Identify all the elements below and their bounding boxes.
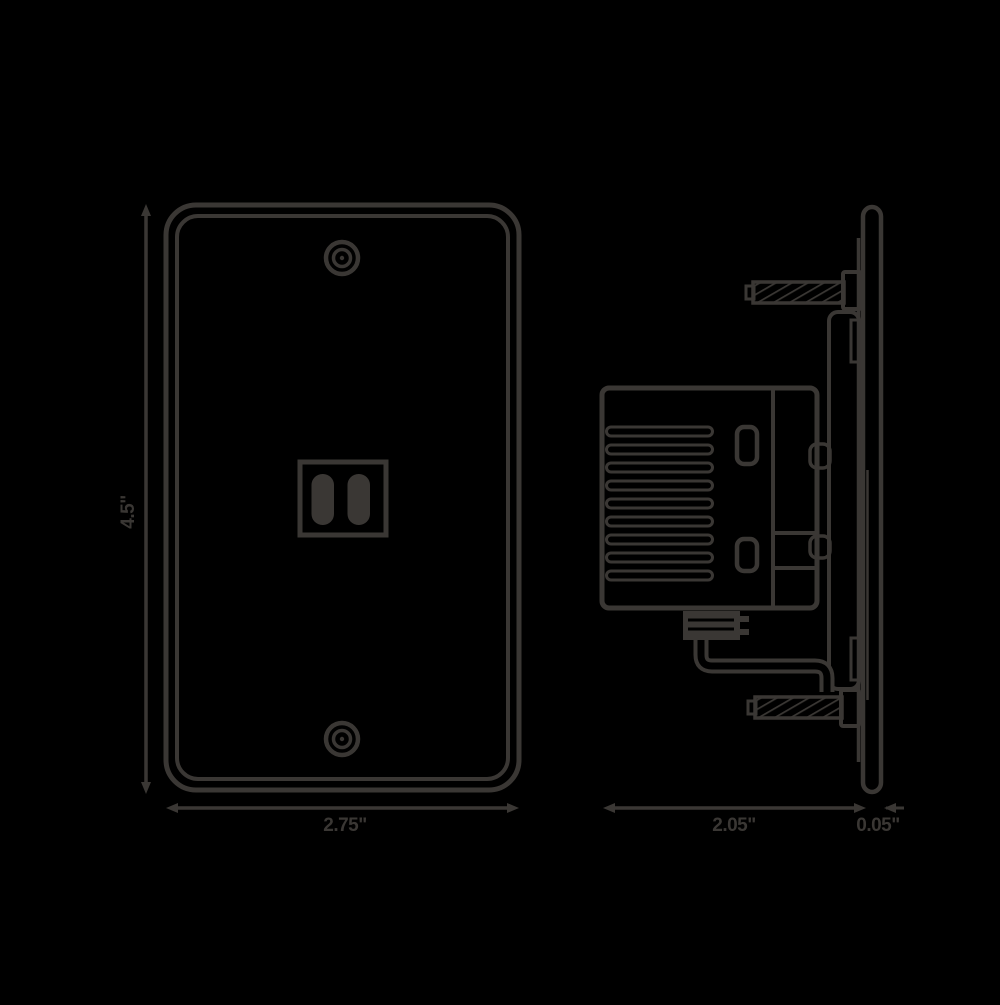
fin bbox=[607, 445, 713, 454]
jack-slot-left bbox=[312, 474, 335, 525]
diagram-canvas: 4.5" 2.75" 2.05" 0.05" bbox=[0, 0, 1000, 1000]
arrowhead-left bbox=[166, 803, 178, 813]
connector-block bbox=[683, 611, 749, 640]
front-screw-top bbox=[326, 242, 358, 274]
front-plate-outer-outline bbox=[166, 205, 519, 790]
arrowhead-right bbox=[507, 803, 519, 813]
screw-thread-shaft bbox=[755, 697, 842, 718]
fin bbox=[607, 481, 713, 490]
connector-pin-lower bbox=[740, 629, 749, 635]
dimension-front-height-label: 4.5" bbox=[118, 495, 139, 528]
arrowhead-right bbox=[854, 803, 866, 813]
screw-thread-shaft bbox=[753, 282, 844, 303]
mounting-screw-bottom bbox=[748, 690, 859, 726]
screw-tip bbox=[746, 286, 754, 299]
fin bbox=[607, 553, 713, 562]
wall-plate-dimension-drawing: 4.5" 2.75" 2.05" 0.05" bbox=[0, 0, 1000, 1000]
screw-tip bbox=[748, 701, 756, 714]
wire-inner bbox=[701, 640, 827, 692]
screw-center-dot bbox=[340, 737, 344, 741]
connector-pin-upper bbox=[740, 616, 749, 622]
vent-slot-bottom bbox=[737, 539, 757, 571]
screw-center-dot bbox=[340, 256, 344, 260]
fin bbox=[607, 427, 713, 436]
arrowhead-down bbox=[141, 782, 151, 794]
dimension-front-width-label: 2.75" bbox=[323, 815, 367, 836]
front-view bbox=[166, 205, 519, 790]
front-screw-bottom bbox=[326, 723, 358, 755]
side-plate-profile bbox=[863, 207, 881, 792]
jack-slot-right bbox=[348, 474, 371, 525]
side-view bbox=[602, 207, 881, 792]
vent-slot-top bbox=[737, 427, 757, 464]
dimension-plate-thickness-label: 0.05" bbox=[856, 815, 900, 836]
dimension-front-width: 2.75" bbox=[166, 803, 519, 836]
fin bbox=[607, 517, 713, 526]
dimension-front-height: 4.5" bbox=[118, 204, 151, 794]
fin bbox=[607, 571, 713, 580]
front-plate-inner-outline bbox=[177, 216, 508, 779]
jack-opening bbox=[300, 462, 386, 535]
arrowhead-up bbox=[141, 204, 151, 216]
device-body bbox=[602, 388, 830, 608]
wire-conduit bbox=[701, 640, 827, 692]
connector-body bbox=[683, 611, 740, 640]
dimension-side-depth-label: 2.05" bbox=[712, 815, 756, 836]
arrowhead-left bbox=[603, 803, 615, 813]
plate-profile-outline bbox=[863, 207, 881, 792]
fin bbox=[607, 463, 713, 472]
fin bbox=[607, 499, 713, 508]
fin bbox=[607, 535, 713, 544]
mounting-bracket-outline bbox=[829, 312, 859, 689]
arrowhead-left bbox=[884, 803, 896, 813]
dimension-side-depth: 2.05" bbox=[603, 803, 866, 836]
mounting-screw-top bbox=[746, 272, 861, 309]
heat-sink-fins bbox=[607, 427, 713, 580]
